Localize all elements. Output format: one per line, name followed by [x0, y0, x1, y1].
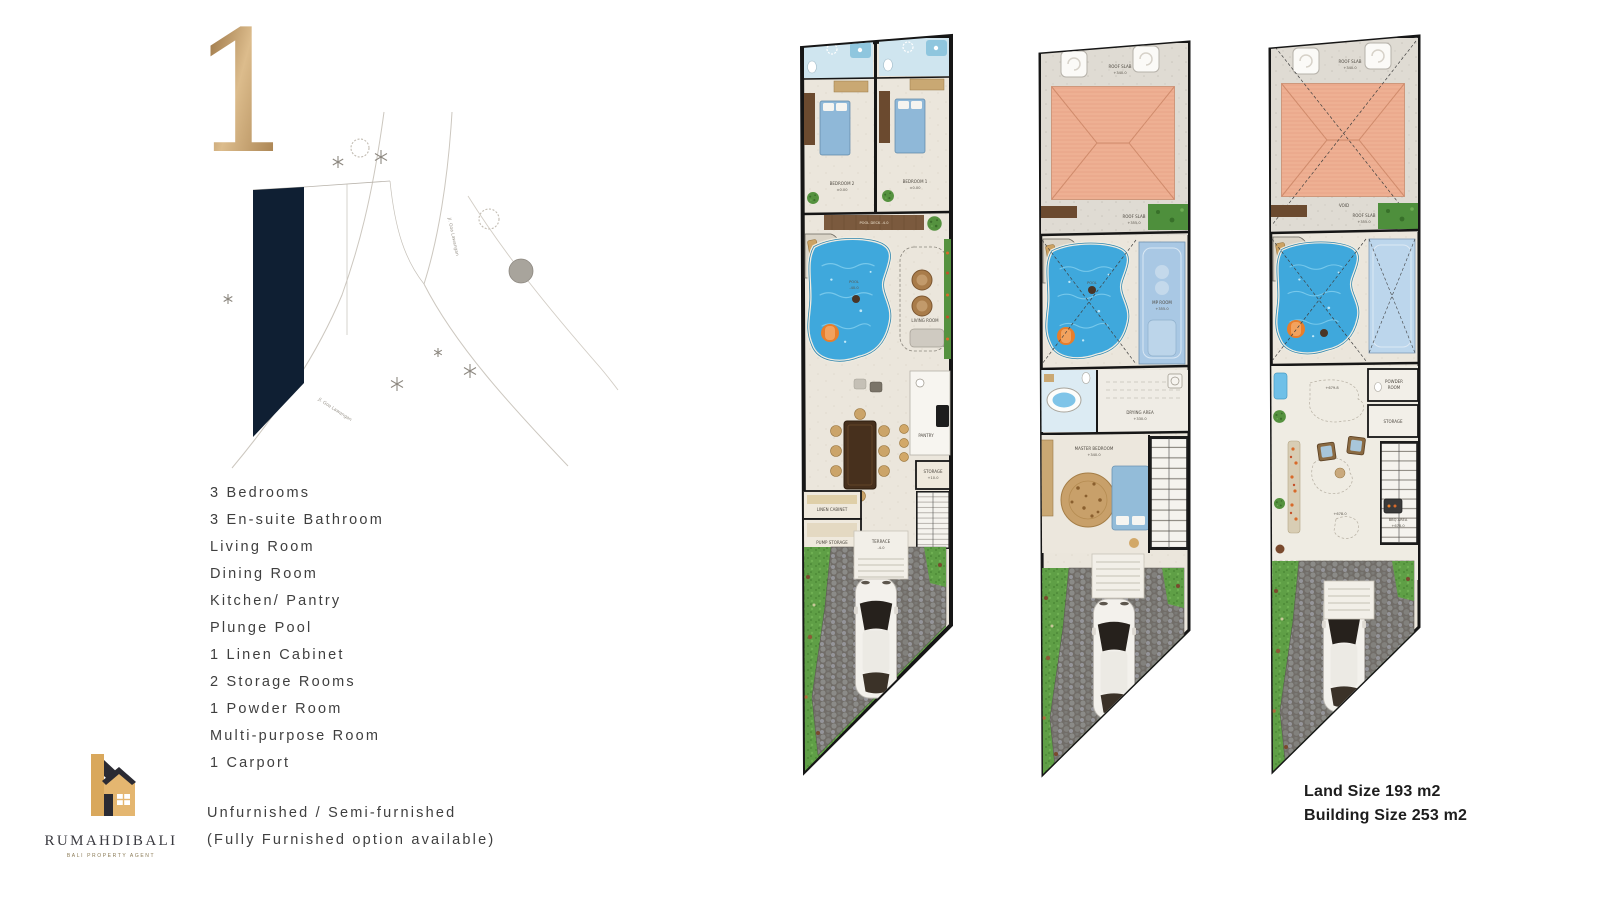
logo-tagline: BALI PROPERTY AGENT	[36, 853, 186, 859]
stairs	[917, 492, 949, 548]
room-level: +355.0	[1357, 220, 1371, 224]
room-label: ROOF SLAB	[1339, 59, 1362, 64]
room-label: POWDER	[1385, 379, 1403, 384]
furnishing-line: Unfurnished / Semi-furnished	[207, 800, 495, 827]
pool-float	[1057, 327, 1075, 345]
room-level: ±0.00	[909, 186, 921, 190]
room-label: POOL	[849, 280, 859, 284]
road-label: Jl. Goa Lawangan	[316, 396, 353, 423]
room-label: ROOF SLAB	[1123, 214, 1146, 219]
feature-item: 1 Powder Room	[210, 696, 384, 723]
room-label: POOL DECK -4.0	[859, 221, 889, 225]
room-label: ROOM	[1388, 385, 1401, 390]
room-label: MP ROOM	[1152, 300, 1172, 305]
room-level: +10.0	[927, 476, 939, 480]
bbq	[1384, 499, 1402, 513]
roof-plan: ROOF SLAB +340.0 VOID ROOF SLAB +355.0 S…	[1266, 33, 1423, 777]
room-label: POOL	[1087, 281, 1097, 285]
room-level: ±0.00	[836, 188, 848, 192]
land-size: Land Size 193 m2	[1304, 780, 1467, 804]
agency-logo: RUMAHDIBALI BALI PROPERTY AGENT	[36, 750, 186, 859]
logo-house-icon	[79, 750, 143, 824]
level-label: +678.0	[1333, 512, 1347, 516]
room-level: +340.0	[1087, 453, 1101, 457]
stairs	[1151, 438, 1187, 549]
feature-item: 3 Bedrooms	[210, 480, 384, 507]
room-level: -40.0	[849, 286, 859, 290]
room-level: +340.0	[1113, 71, 1127, 75]
feature-item: Multi-purpose Room	[210, 723, 384, 750]
feature-item: Dining Room	[210, 561, 384, 588]
room-level: +678.0	[1391, 524, 1405, 528]
room-level: -4.0	[877, 546, 885, 550]
void-label: VOID	[1339, 203, 1349, 208]
room-label: LINEN CABINET	[817, 507, 848, 512]
furnishing-note: Unfurnished / Semi-furnished (Fully Furn…	[207, 800, 495, 854]
room-label: ROOF SLAB	[1353, 213, 1376, 218]
driveway	[1038, 568, 1184, 778]
hip-roof	[1052, 87, 1175, 200]
bed	[820, 101, 850, 155]
building-size: Building Size 253 m2	[1304, 804, 1467, 828]
room-label: ROOF SLAB	[1109, 64, 1132, 69]
feature-item: 3 En-suite Bathroom	[210, 507, 384, 534]
room-level: +355.0	[1127, 221, 1141, 225]
room-level: +340.0	[1343, 66, 1357, 70]
room-level: +330.0	[1133, 417, 1147, 421]
feature-list: 3 Bedrooms 3 En-suite Bathroom Living Ro…	[210, 480, 384, 777]
terrace-chair	[1317, 442, 1336, 461]
feature-item: 1 Linen Cabinet	[210, 642, 384, 669]
room-label: PANTRY	[918, 433, 934, 438]
site-plan: Jl. Goa Lawangan Jl. Goa Lawangan	[200, 100, 620, 480]
feature-item: Living Room	[210, 534, 384, 561]
driveway	[800, 547, 946, 773]
room-label: BEDROOM 1	[903, 179, 928, 184]
logo-name: RUMAHDIBALI	[36, 833, 186, 850]
room-label: TERRACE	[871, 539, 891, 544]
size-info: Land Size 193 m2 Building Size 253 m2	[1304, 780, 1467, 828]
road-label: Jl. Goa Lawangan	[446, 216, 460, 256]
furnishing-line: (Fully Furnished option available)	[207, 827, 495, 854]
highlighted-plot	[253, 187, 304, 437]
feature-item: 2 Storage Rooms	[210, 669, 384, 696]
room-label: LIVING ROOM	[911, 318, 939, 323]
level-label: +679.8	[1325, 386, 1339, 390]
room-label: STORAGE	[1383, 419, 1403, 424]
room-label: PUMP STORAGE	[816, 540, 848, 545]
ground-floor-plan: BEDROOM 2 ±0.00 BEDROOM 1 ±0.00 POOL DEC…	[798, 33, 955, 777]
bed	[895, 99, 925, 153]
pool-float	[821, 324, 839, 342]
pool-float	[1287, 320, 1305, 338]
terrace-chair	[1347, 436, 1366, 455]
hip-roof	[1282, 84, 1405, 197]
room-label: BEDROOM 2	[830, 181, 855, 186]
brochure-page: 1 Jl. Goa Lawangan Jl. Goa Lawangan	[0, 0, 1600, 900]
feature-item: Kitchen/ Pantry	[210, 588, 384, 615]
feature-item: 1 Carport	[210, 750, 384, 777]
room-label: BBQ AREA	[1389, 518, 1408, 522]
room-label: MASTER BEDROOM	[1075, 446, 1114, 451]
room-level: +355.0	[1155, 307, 1169, 311]
feature-item: Plunge Pool	[210, 615, 384, 642]
second-floor-plan: ROOF SLAB +340.0 ROOF SLAB +355.0 SUN LO…	[1036, 38, 1193, 778]
room-label: DRYING AREA	[1126, 410, 1154, 415]
stairs	[1381, 442, 1417, 543]
room-label: STORAGE	[923, 469, 943, 474]
